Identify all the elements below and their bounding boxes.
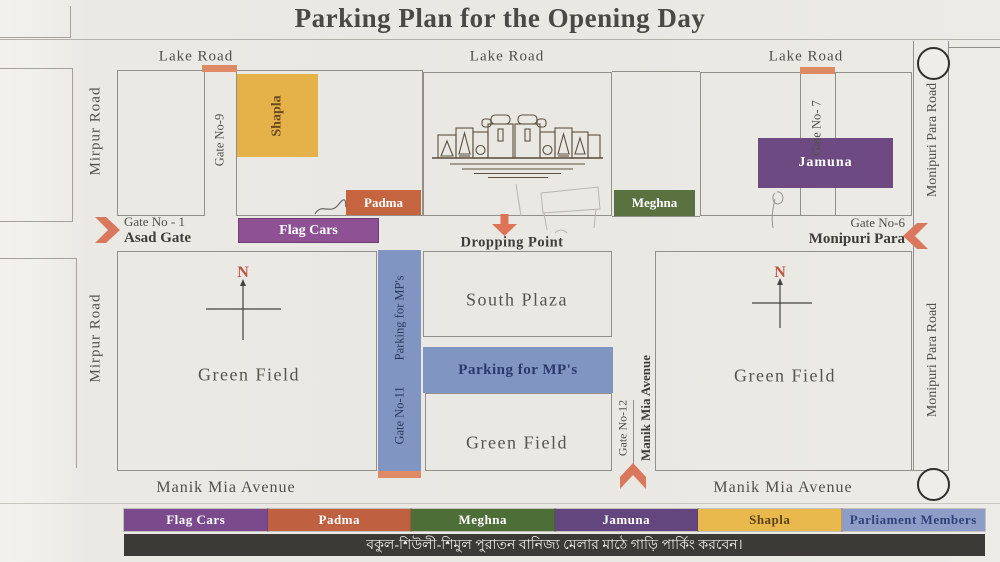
gate1-name: Asad Gate <box>124 230 191 247</box>
legend-item-padma: Padma <box>268 509 412 531</box>
south-plaza-label: South Plaza <box>466 290 568 311</box>
manik-mia-avenue-vertical-label: Manik Mia Avenue <box>638 355 654 461</box>
road-line <box>612 216 700 217</box>
fold-line <box>0 503 1000 504</box>
monipuri-road-line <box>948 41 949 471</box>
meghna-zone-label: Meghna <box>632 195 678 211</box>
north-compass-icon: N <box>203 255 288 345</box>
block-topleft <box>117 70 205 216</box>
roundabout-circle-top <box>917 47 950 80</box>
north-compass-icon: N <box>742 255 817 333</box>
mirpur-road-label: Mirpur Road <box>88 294 105 383</box>
gate9-tick <box>202 65 237 72</box>
notice-text: বকুল-শিউলী-শিমুল পুরাতন বানিজ্য মেলার মা… <box>366 533 742 557</box>
gate7-tick <box>800 67 835 74</box>
compass-n-letter: N <box>774 264 786 281</box>
roundabout-circle-bottom <box>917 468 950 501</box>
gate11-tick <box>378 471 421 478</box>
green-field-label: Green Field <box>198 365 300 386</box>
lake-road-label: Lake Road <box>769 49 843 66</box>
lake-road-label: Lake Road <box>159 49 233 66</box>
pencil-squiggle <box>763 186 789 230</box>
gate1-label-group: Gate No - 1 Asad Gate <box>124 215 191 247</box>
pencil-sketch-marks <box>505 178 605 240</box>
legend-item-parliament-members: Parliament Members <box>842 509 986 531</box>
gate11-label: Gate No-11 <box>393 386 407 444</box>
mirpur-road-label: Mirpur Road <box>88 87 105 176</box>
title-underline <box>0 39 1000 40</box>
mp-parking-box: Parking for MP's <box>423 347 613 393</box>
mp-parking-label: Parking for MP's <box>458 362 577 379</box>
gate1-direction-arrow-icon <box>93 214 123 246</box>
gate7-label: Gate No- 7 <box>810 100 825 156</box>
padma-zone: Padma <box>346 190 421 215</box>
jamuna-zone: Jamuna <box>758 138 893 188</box>
gate11-strip-label: Gate No-11Parking for MP's <box>393 275 408 444</box>
mp-parking-vertical-label: Parking for MP's <box>393 275 407 360</box>
monipuri-para-road-label: Monipuri Para Road <box>925 83 941 197</box>
legend-bar: Flag Cars Padma Meghna Jamuna Shapla Par… <box>124 509 985 531</box>
page-title: Parking Plan for the Opening Day <box>0 3 1000 34</box>
green-field-label: Green Field <box>466 433 568 454</box>
gate1-label: Gate No - 1 <box>124 215 191 230</box>
legend-item-flag-cars: Flag Cars <box>124 509 268 531</box>
notice-bar: বকুল-শিউলী-শিমুল পুরাতন বানিজ্য মেলার মা… <box>124 534 985 556</box>
parking-plan-page: Parking Plan for the Opening Day Shapla … <box>0 0 1000 562</box>
gate6-label: Gate No-6 <box>799 216 905 231</box>
gate6-name: Monipuri Para <box>799 231 905 248</box>
gate12-direction-arrow-icon <box>617 458 649 492</box>
meghna-zone: Meghna <box>614 190 695 216</box>
gate12-label: Gate No-12 <box>616 400 631 456</box>
road-line <box>612 71 700 72</box>
shapla-zone-label: Shapla <box>270 95 286 136</box>
shapla-zone: Shapla <box>237 74 318 157</box>
jamuna-zone-label: Jamuna <box>798 155 852 171</box>
legend-item-shapla: Shapla <box>698 509 842 531</box>
green-field-label: Green Field <box>734 366 836 387</box>
gate6-direction-arrow-icon <box>900 220 930 252</box>
legend-item-meghna: Meghna <box>411 509 555 531</box>
road-line <box>948 47 1000 48</box>
flag-cars-zone: Flag Cars <box>238 218 379 243</box>
monipuri-para-road-label: Monipuri Para Road <box>925 303 941 417</box>
padma-zone-label: Padma <box>364 195 403 211</box>
gate6-label-group: Gate No-6 Monipuri Para <box>799 216 905 248</box>
monipuri-road-line <box>913 41 914 471</box>
flag-cars-zone-label: Flag Cars <box>279 223 338 239</box>
gate9-label: Gate No-9 <box>213 114 228 166</box>
manik-mia-avenue-label: Manik Mia Avenue <box>713 479 852 497</box>
left-margin-block <box>0 258 77 468</box>
compass-n-letter: N <box>237 264 249 281</box>
parliament-building-illustration <box>425 108 610 183</box>
manik-mia-avenue-label: Manik Mia Avenue <box>156 479 295 497</box>
lake-road-label: Lake Road <box>470 49 544 66</box>
pencil-squiggle <box>312 200 348 218</box>
legend-item-jamuna: Jamuna <box>555 509 699 531</box>
left-margin-block <box>0 68 73 222</box>
left-margin-block <box>0 6 71 38</box>
